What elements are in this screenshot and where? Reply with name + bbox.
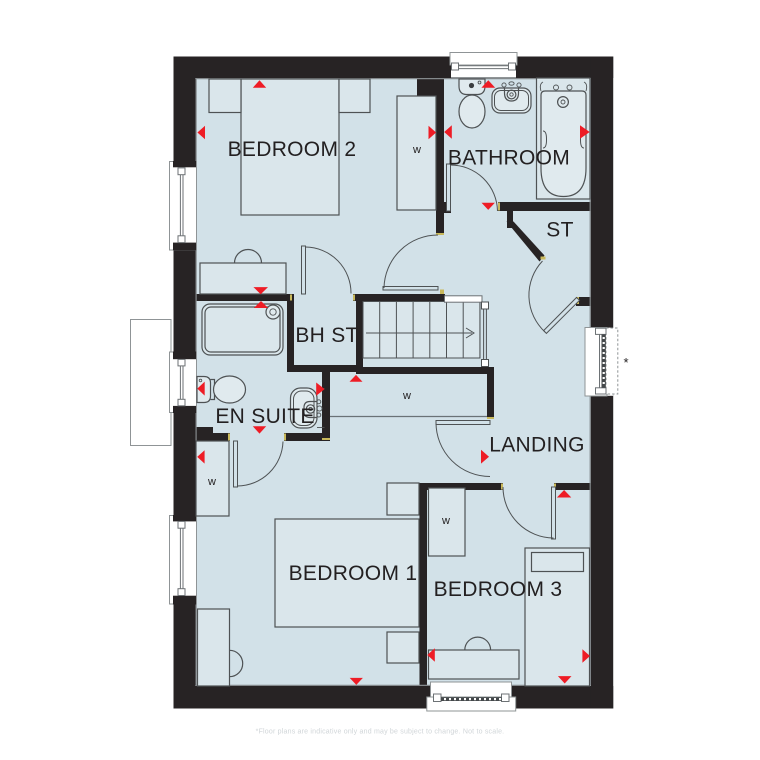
svg-text:w: w [412,144,421,156]
svg-text:EN SUITE: EN SUITE [215,405,314,428]
svg-text:w: w [207,476,216,488]
svg-text:BEDROOM 2: BEDROOM 2 [228,138,357,161]
svg-text:BEDROOM 3: BEDROOM 3 [434,578,563,601]
svg-text:BATHROOM: BATHROOM [448,147,570,170]
svg-text:w: w [441,515,450,527]
svg-text:BEDROOM 1: BEDROOM 1 [289,562,418,585]
svg-text:*Floor plans are indicative on: *Floor plans are indicative only and may… [256,729,505,736]
svg-text:BH ST: BH ST [295,324,358,347]
svg-text:LANDING: LANDING [489,434,584,457]
svg-text:ST: ST [546,219,573,242]
svg-text:w: w [402,390,411,402]
svg-text:*: * [623,355,628,370]
